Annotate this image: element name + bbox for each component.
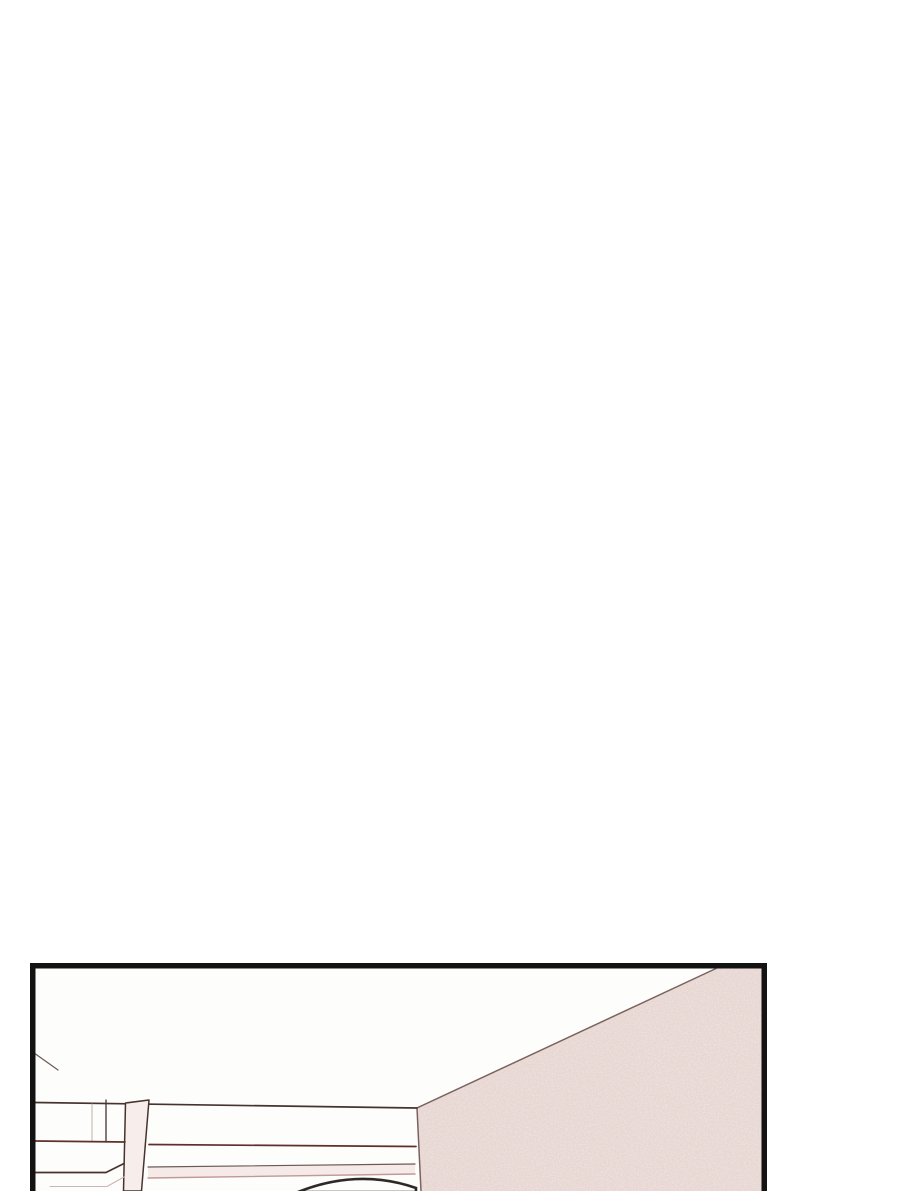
webtoon-page (0, 0, 900, 1191)
panel-border-right (762, 963, 768, 1191)
comic-panel (30, 963, 767, 1191)
shelf-line-left (36, 1141, 126, 1142)
panel-border-left (30, 963, 36, 1191)
panel-border-top (30, 963, 767, 969)
panel-artwork (30, 963, 767, 1191)
